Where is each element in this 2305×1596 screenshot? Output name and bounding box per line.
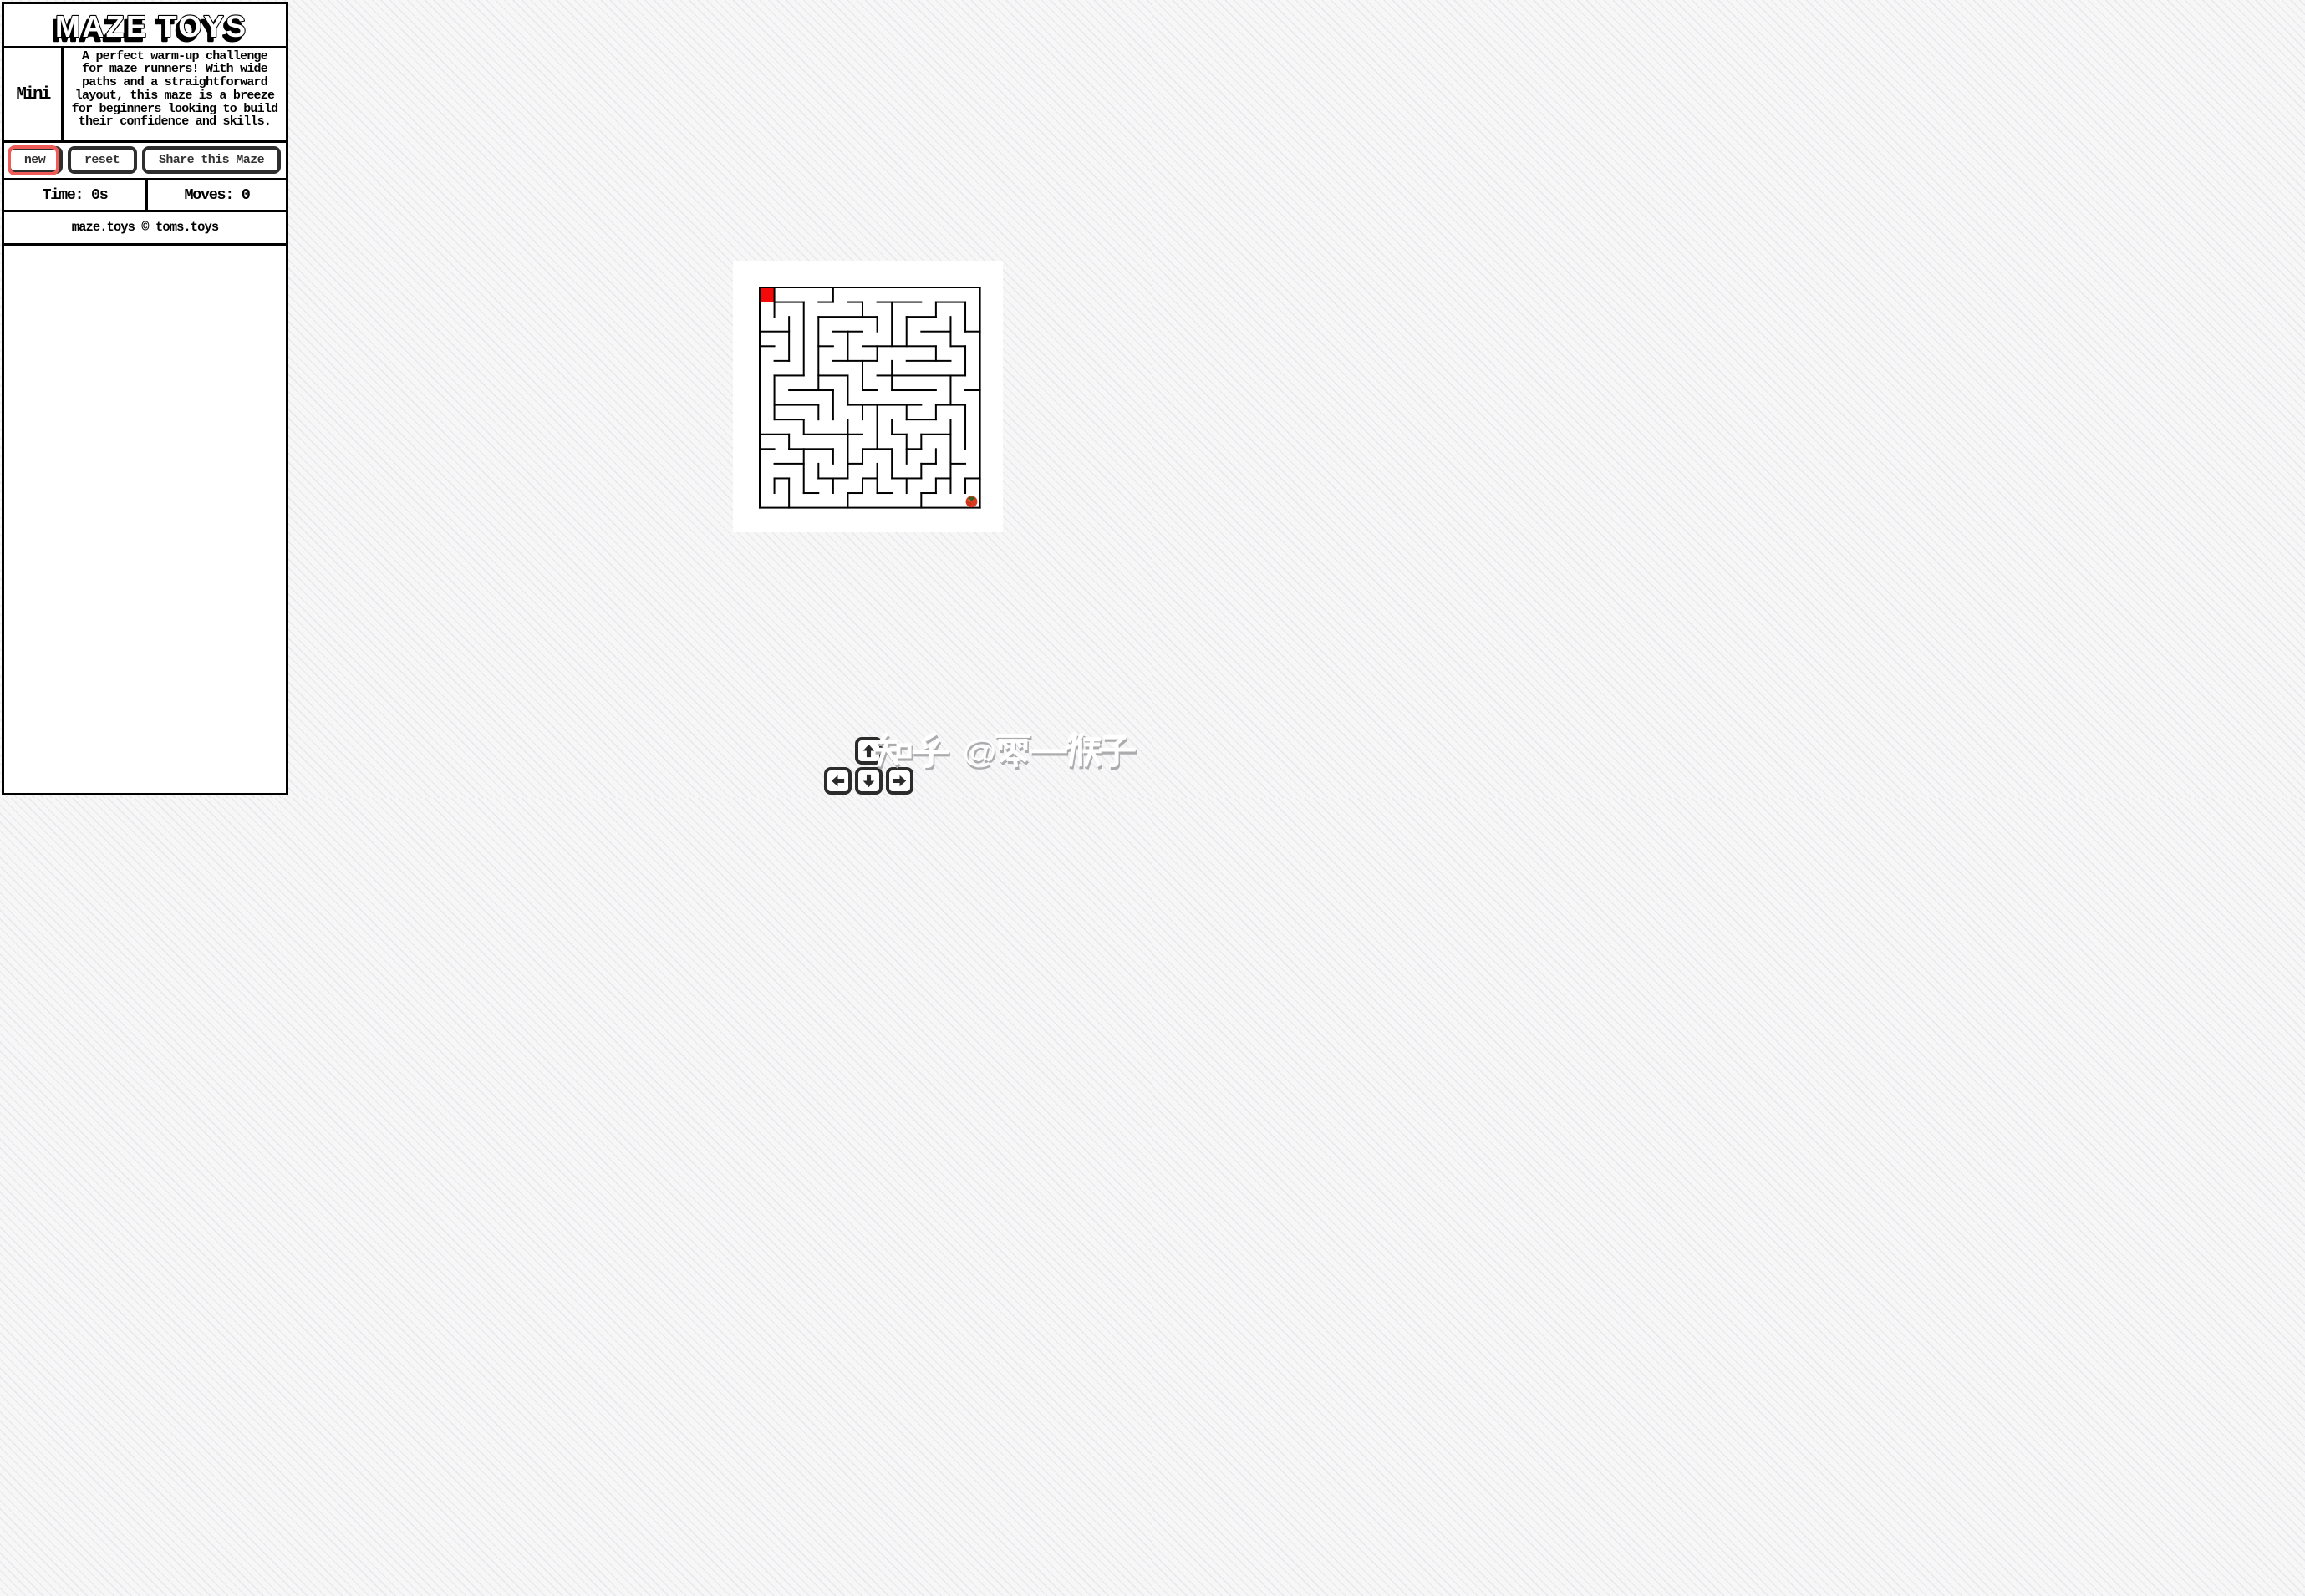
svg-text:MAZE TOYS: MAZE TOYS (55, 9, 246, 43)
svg-text:@: @ (962, 734, 998, 770)
